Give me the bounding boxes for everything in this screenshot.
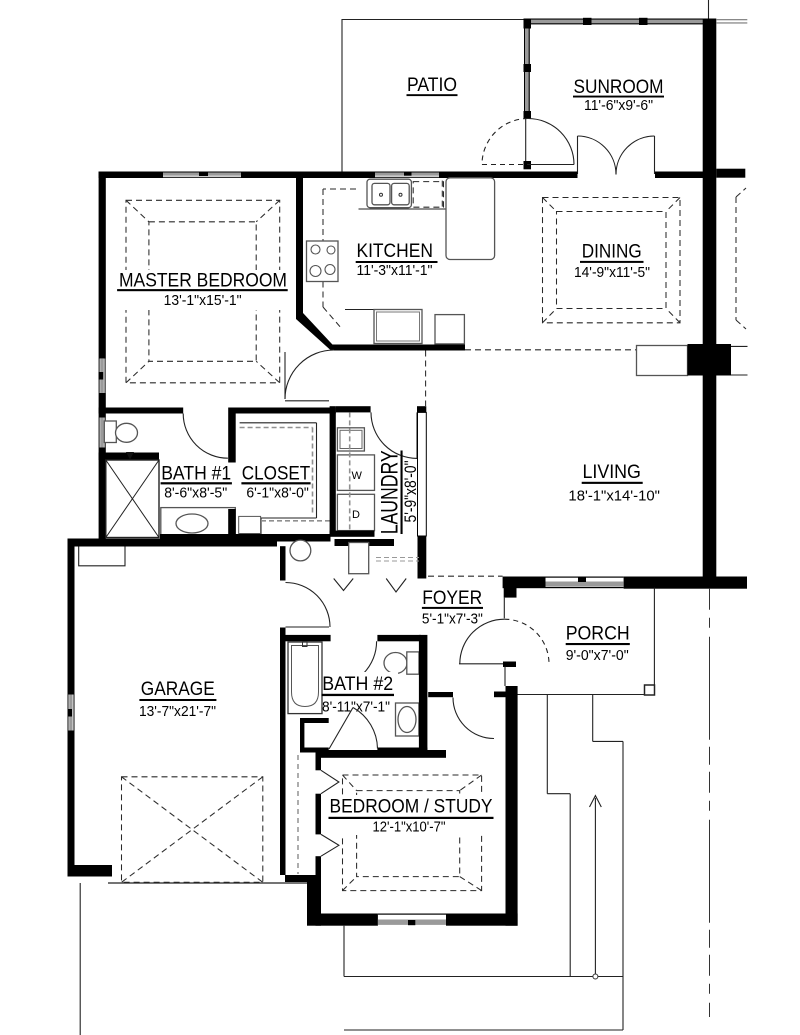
svg-text:W: W: [352, 470, 363, 482]
svg-text:BATH #1: BATH #1: [161, 463, 231, 485]
svg-text:PATIO: PATIO: [407, 74, 457, 96]
svg-text:FOYER: FOYER: [422, 587, 482, 609]
svg-text:6'-1"x8'-0": 6'-1"x8'-0": [246, 486, 309, 502]
svg-text:9'-0"x7'-0": 9'-0"x7'-0": [566, 648, 629, 664]
svg-text:GARAGE: GARAGE: [141, 678, 215, 700]
svg-text:5'-1"x7'-3": 5'-1"x7'-3": [422, 612, 483, 628]
svg-text:LIVING: LIVING: [582, 461, 641, 483]
svg-text:KITCHEN: KITCHEN: [356, 240, 433, 262]
svg-text:D: D: [352, 509, 360, 521]
svg-text:CLOSET: CLOSET: [242, 463, 311, 485]
svg-text:MASTER BEDROOM: MASTER BEDROOM: [119, 270, 287, 292]
svg-text:12'-1"x10'-7": 12'-1"x10'-7": [373, 820, 446, 836]
svg-text:14'-9"x11'-5": 14'-9"x11'-5": [574, 265, 650, 281]
svg-text:8'-6"x8'-5": 8'-6"x8'-5": [164, 486, 227, 502]
svg-text:18'-1"x14'-10": 18'-1"x14'-10": [568, 489, 660, 505]
svg-text:8'-11"x7'-1": 8'-11"x7'-1": [322, 700, 390, 716]
svg-text:BEDROOM / STUDY: BEDROOM / STUDY: [330, 796, 493, 818]
svg-text:13'-1"x15'-1": 13'-1"x15'-1": [164, 293, 242, 309]
svg-text:11'-3"x11'-1": 11'-3"x11'-1": [357, 263, 433, 279]
svg-text:11'-6"x9'-6": 11'-6"x9'-6": [584, 98, 653, 114]
svg-text:DINING: DINING: [582, 241, 642, 263]
svg-text:LAUNDRY: LAUNDRY: [377, 450, 404, 534]
svg-text:BATH #2: BATH #2: [322, 673, 393, 695]
svg-text:SUNROOM: SUNROOM: [574, 76, 664, 98]
svg-text:13'-7"x21'-7": 13'-7"x21'-7": [139, 704, 216, 720]
svg-text:PORCH: PORCH: [566, 623, 630, 645]
